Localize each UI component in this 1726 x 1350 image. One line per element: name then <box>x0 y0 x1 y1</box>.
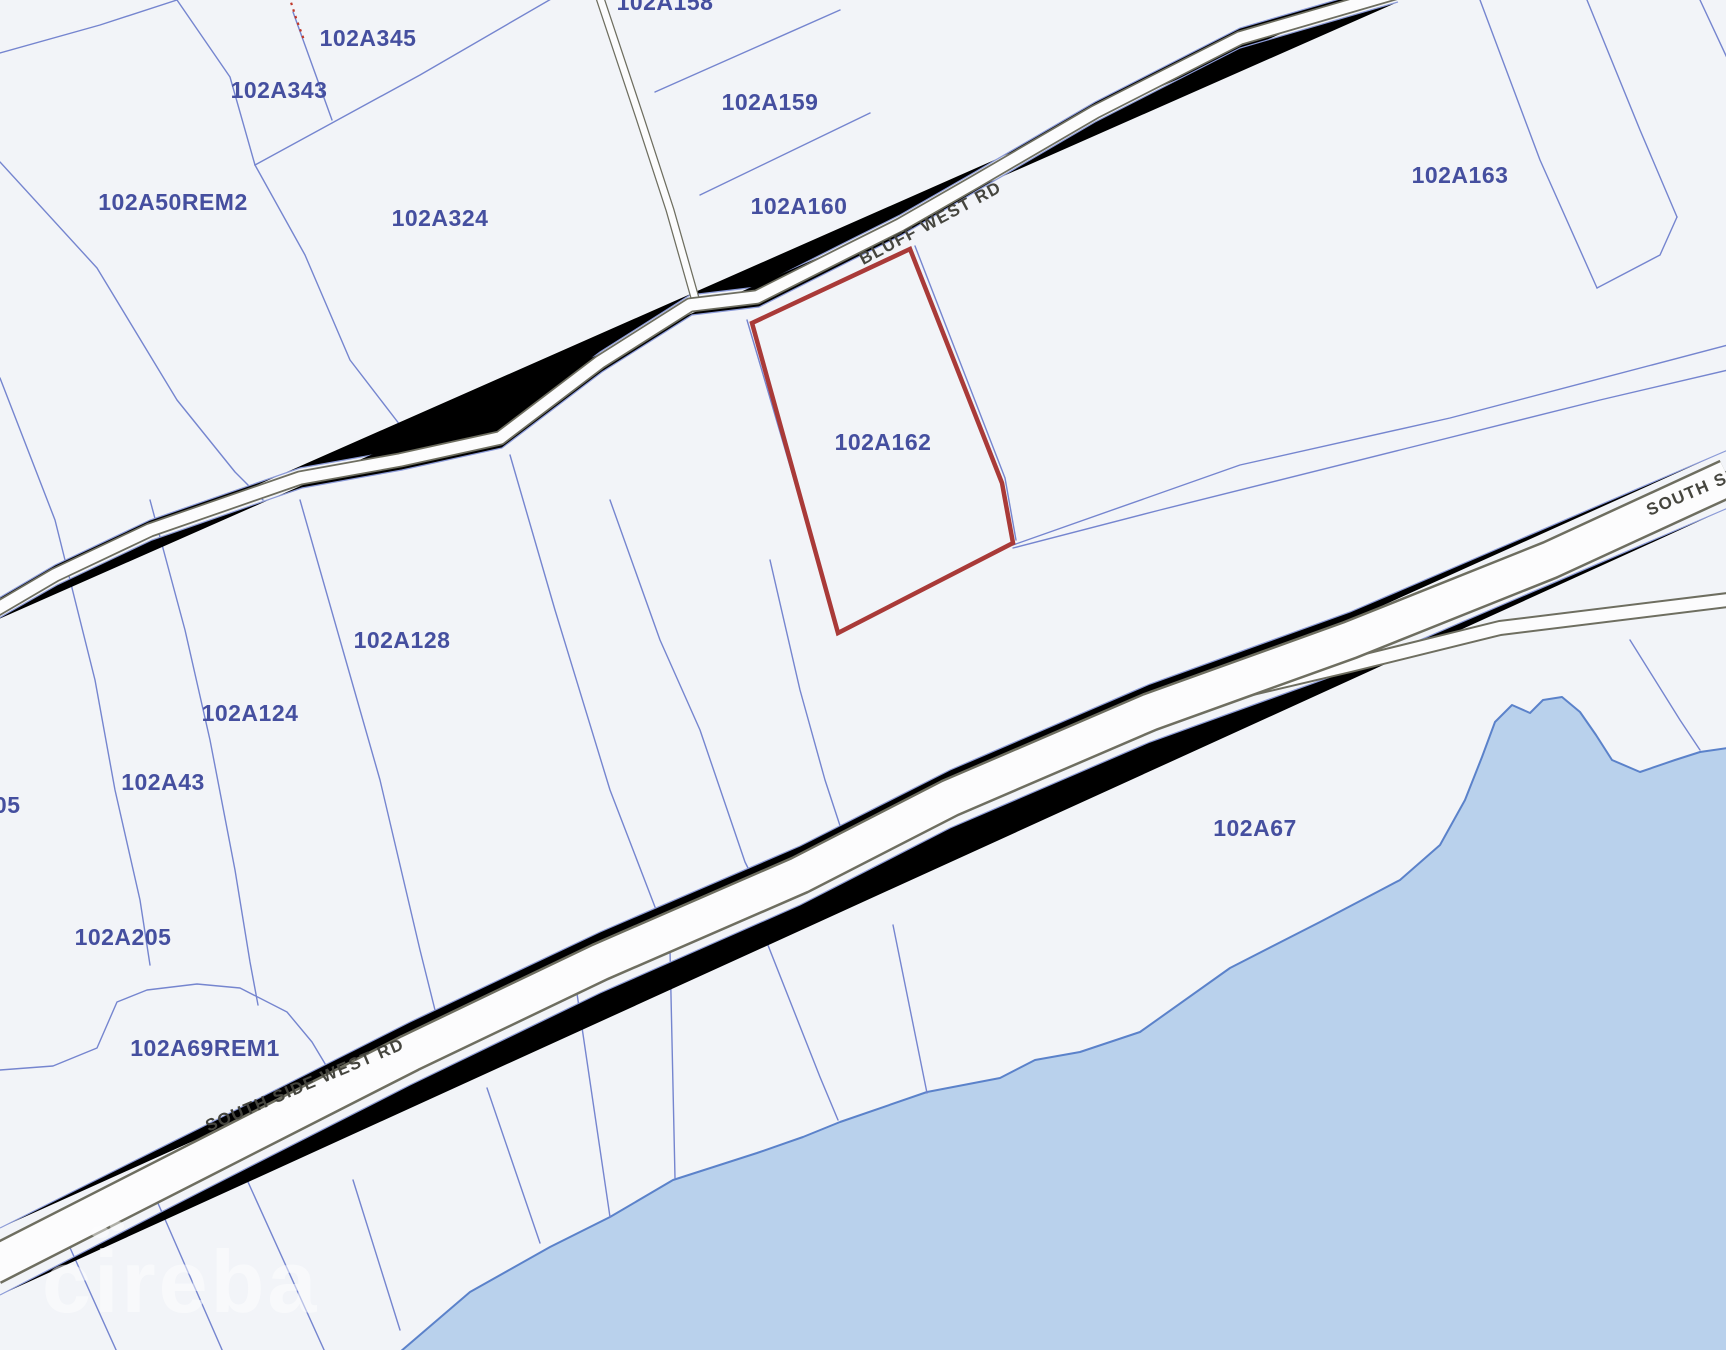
map-canvas[interactable]: 102A158 102A345 102A343 102A50REM2 102A3… <box>0 0 1726 1350</box>
parcel-label: 102A324 <box>392 205 489 231</box>
parcel-label: 102A159 <box>722 89 819 115</box>
parcel-label: 102A205 <box>75 924 172 950</box>
parcel-label: 102A128 <box>354 627 451 653</box>
parcel-label: 102A50REM2 <box>98 189 247 215</box>
watermark-text: cireba <box>42 1232 319 1331</box>
parcel-label-clipped: A205 <box>0 792 20 818</box>
parcel-label-highlighted: 102A162 <box>835 429 932 455</box>
parcel-label: 102A124 <box>202 700 299 726</box>
map-screenshot: 102A158 102A345 102A343 102A50REM2 102A3… <box>0 0 1726 1350</box>
parcel-label: 102A43 <box>121 769 205 795</box>
parcel-label: 102A158 <box>617 0 714 15</box>
parcel-label: 102A160 <box>751 193 848 219</box>
parcel-label: 102A163 <box>1412 162 1509 188</box>
watermark: cireba <box>42 1221 319 1331</box>
parcel-label: 102A69REM1 <box>130 1035 279 1061</box>
parcel-label: 102A343 <box>231 77 328 103</box>
parcel-label: 102A67 <box>1213 815 1297 841</box>
parcel-label: 102A345 <box>320 25 417 51</box>
